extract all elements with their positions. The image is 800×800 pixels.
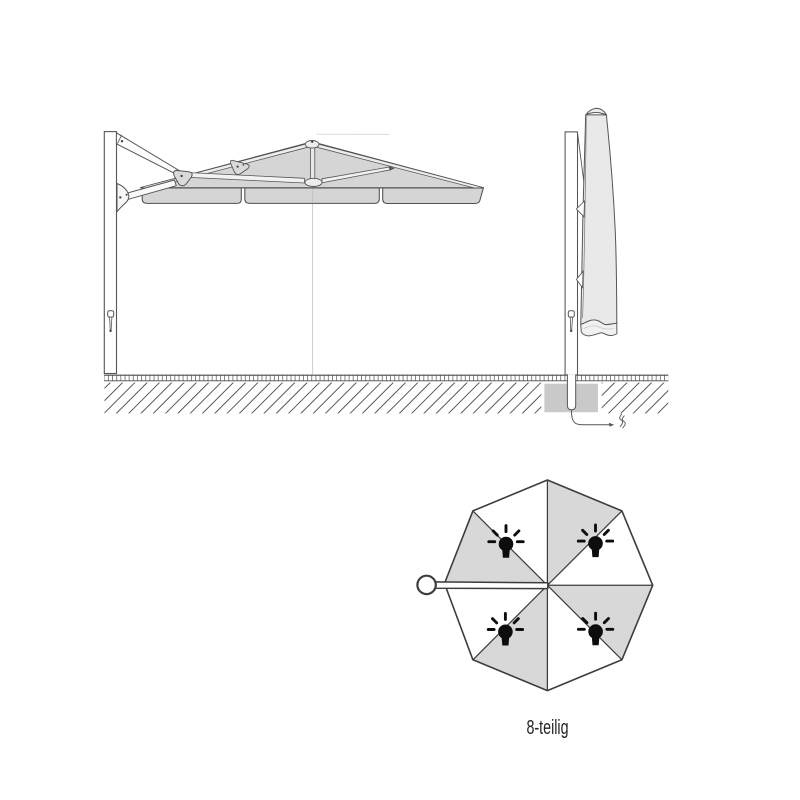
svg-text:8-teilig: 8-teilig — [527, 717, 569, 739]
